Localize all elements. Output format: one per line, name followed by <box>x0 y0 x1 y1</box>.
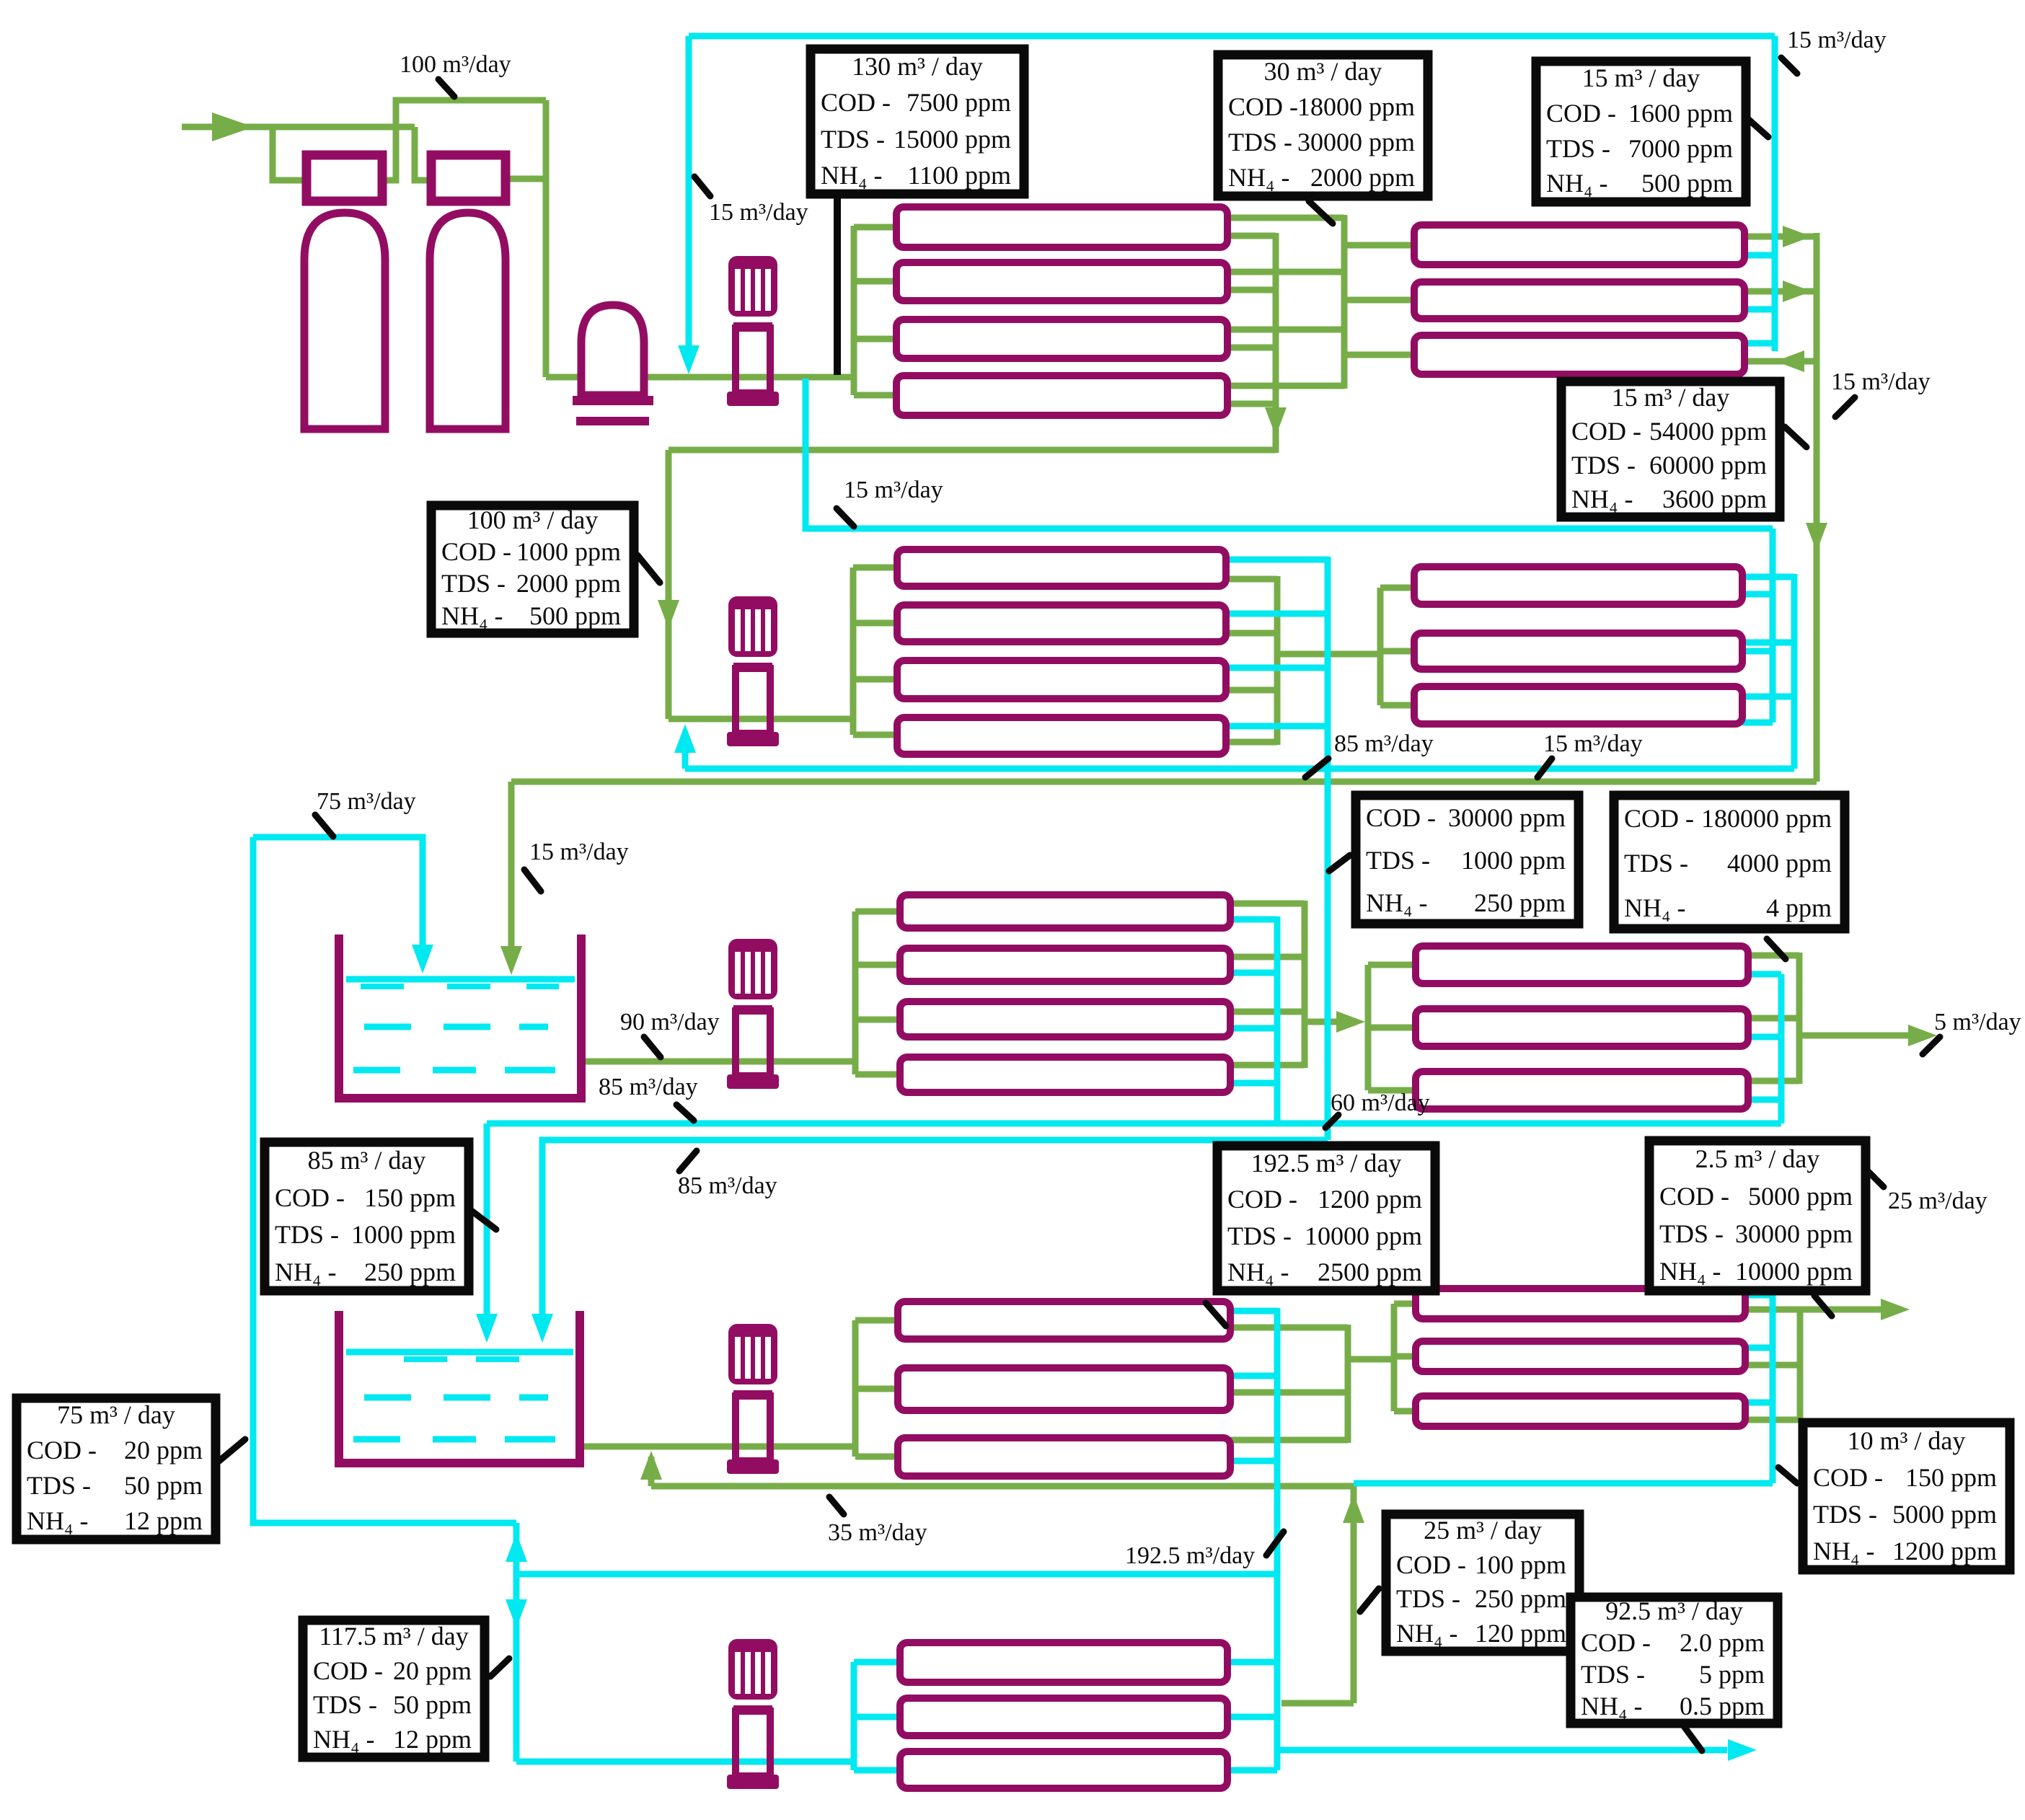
svg-text:20 ppm: 20 ppm <box>393 1656 472 1685</box>
svg-text:2000 ppm: 2000 ppm <box>1310 163 1415 192</box>
svg-text:NH₄ -: NH₄ - <box>313 1725 375 1754</box>
svg-text:NH₄ -: NH₄ - <box>1571 485 1633 513</box>
svg-text:12 ppm: 12 ppm <box>124 1506 203 1535</box>
svg-text:30000 ppm: 30000 ppm <box>1735 1219 1853 1248</box>
svg-text:NH₄ -: NH₄ - <box>1546 169 1608 198</box>
svg-text:15000 ppm: 15000 ppm <box>894 125 1011 154</box>
svg-text:1600 ppm: 1600 ppm <box>1628 99 1733 128</box>
svg-text:5000 ppm: 5000 ppm <box>1892 1500 1997 1529</box>
svg-text:NH₄ -: NH₄ - <box>1366 888 1428 917</box>
svg-text:150 ppm: 150 ppm <box>1905 1463 1997 1492</box>
svg-text:TDS -: TDS - <box>821 125 885 154</box>
svg-text:500 ppm: 500 ppm <box>529 601 621 630</box>
svg-text:COD -: COD - <box>1624 804 1694 833</box>
svg-text:117.5 m³ / day: 117.5 m³ / day <box>319 1622 468 1651</box>
svg-text:5 ppm: 5 ppm <box>1699 1660 1765 1689</box>
svg-text:1000 ppm: 1000 ppm <box>351 1220 456 1249</box>
svg-text:COD -: COD - <box>275 1183 345 1212</box>
svg-text:250 ppm: 250 ppm <box>364 1258 456 1286</box>
svg-text:NH₄ -: NH₄ - <box>1581 1692 1643 1720</box>
svg-text:192.5 m³ / day: 192.5 m³ / day <box>1251 1149 1402 1178</box>
svg-text:5000 ppm: 5000 ppm <box>1748 1182 1853 1211</box>
svg-text:1000 ppm: 1000 ppm <box>516 537 621 566</box>
svg-text:25 m³ / day: 25 m³ / day <box>1424 1516 1542 1545</box>
svg-text:18000 ppm: 18000 ppm <box>1297 92 1415 121</box>
svg-text:60000 ppm: 60000 ppm <box>1649 451 1767 480</box>
svg-text:100 m³/day: 100 m³/day <box>400 51 511 78</box>
svg-text:7500 ppm: 7500 ppm <box>906 88 1011 117</box>
svg-text:TDS -: TDS - <box>1581 1660 1645 1689</box>
svg-text:TDS -: TDS - <box>1396 1584 1460 1613</box>
svg-text:0.5 ppm: 0.5 ppm <box>1680 1692 1765 1720</box>
svg-text:NH₄ -: NH₄ - <box>1396 1619 1458 1648</box>
svg-text:2500 ppm: 2500 ppm <box>1318 1258 1422 1286</box>
svg-text:NH₄ -: NH₄ - <box>821 161 883 190</box>
svg-text:TDS -: TDS - <box>1659 1219 1724 1248</box>
svg-text:15 m³ / day: 15 m³ / day <box>1582 63 1700 92</box>
svg-text:COD -: COD - <box>1571 417 1641 446</box>
svg-text:30 m³ / day: 30 m³ / day <box>1264 57 1382 86</box>
svg-text:85 m³ / day: 85 m³ / day <box>308 1146 426 1175</box>
svg-text:NH₄ -: NH₄ - <box>441 601 503 630</box>
svg-text:TDS -: TDS - <box>1624 849 1688 878</box>
svg-text:15 m³/day: 15 m³/day <box>1543 730 1643 757</box>
svg-text:150 ppm: 150 ppm <box>364 1183 456 1212</box>
svg-text:35 m³/day: 35 m³/day <box>828 1519 927 1546</box>
svg-text:COD -: COD - <box>821 88 891 117</box>
svg-text:COD -: COD - <box>1366 803 1436 832</box>
svg-text:15 m³/day: 15 m³/day <box>1787 27 1887 53</box>
svg-text:COD -: COD - <box>1228 92 1298 121</box>
svg-text:100 ppm: 100 ppm <box>1475 1550 1566 1579</box>
svg-text:7000 ppm: 7000 ppm <box>1628 134 1733 163</box>
svg-text:120 ppm: 120 ppm <box>1475 1619 1566 1648</box>
svg-text:2.5 m³ / day: 2.5 m³ / day <box>1695 1144 1820 1173</box>
svg-text:COD -: COD - <box>1659 1182 1729 1211</box>
svg-text:50 ppm: 50 ppm <box>393 1690 472 1719</box>
svg-text:60 m³/day: 60 m³/day <box>1331 1090 1430 1116</box>
svg-text:30000 ppm: 30000 ppm <box>1297 128 1415 156</box>
svg-text:15 m³/day: 15 m³/day <box>529 839 629 865</box>
svg-text:92.5 m³ / day: 92.5 m³ / day <box>1605 1596 1743 1625</box>
svg-text:COD -: COD - <box>27 1436 97 1465</box>
svg-text:15 m³/day: 15 m³/day <box>709 199 808 226</box>
svg-text:3600 ppm: 3600 ppm <box>1662 485 1767 513</box>
svg-text:12 ppm: 12 ppm <box>393 1725 472 1754</box>
svg-text:90 m³/day: 90 m³/day <box>620 1009 720 1035</box>
svg-text:TDS -: TDS - <box>1546 134 1610 163</box>
svg-text:COD -: COD - <box>1546 99 1616 128</box>
svg-text:130 m³ / day: 130 m³ / day <box>852 52 983 81</box>
svg-text:NH₄ -: NH₄ - <box>1659 1257 1721 1286</box>
svg-text:2.0 ppm: 2.0 ppm <box>1680 1628 1765 1657</box>
svg-text:85 m³/day: 85 m³/day <box>1334 730 1434 757</box>
svg-text:COD -: COD - <box>1227 1185 1297 1214</box>
svg-text:5 m³/day: 5 m³/day <box>1934 1009 2021 1035</box>
svg-text:COD -: COD - <box>441 537 511 566</box>
svg-text:10000 ppm: 10000 ppm <box>1305 1222 1422 1250</box>
svg-text:1100 ppm: 1100 ppm <box>907 161 1011 190</box>
svg-text:1200 ppm: 1200 ppm <box>1318 1185 1422 1214</box>
svg-text:TDS -: TDS - <box>441 569 506 598</box>
svg-text:100 m³ / day: 100 m³ / day <box>467 505 599 534</box>
svg-text:50 ppm: 50 ppm <box>124 1471 203 1500</box>
svg-text:192.5 m³/day: 192.5 m³/day <box>1125 1542 1255 1569</box>
svg-text:250 ppm: 250 ppm <box>1474 888 1566 917</box>
svg-text:500 ppm: 500 ppm <box>1641 169 1733 198</box>
svg-text:COD -: COD - <box>1581 1628 1651 1657</box>
svg-text:15 m³/day: 15 m³/day <box>1831 368 1931 395</box>
svg-text:180000 ppm: 180000 ppm <box>1701 804 1832 833</box>
svg-text:TDS -: TDS - <box>1571 451 1636 480</box>
svg-text:75 m³ / day: 75 m³ / day <box>57 1400 175 1429</box>
svg-text:NH₄ -: NH₄ - <box>27 1506 89 1535</box>
svg-text:NH₄ -: NH₄ - <box>1813 1537 1875 1565</box>
svg-text:NH₄ -: NH₄ - <box>1624 893 1686 922</box>
svg-text:2000 ppm: 2000 ppm <box>516 569 621 598</box>
svg-text:10 m³ / day: 10 m³ / day <box>1848 1426 1966 1455</box>
svg-text:25 m³/day: 25 m³/day <box>1888 1188 1987 1214</box>
svg-text:15 m³/day: 15 m³/day <box>844 477 943 503</box>
svg-text:75 m³/day: 75 m³/day <box>317 788 416 815</box>
svg-text:4000 ppm: 4000 ppm <box>1727 849 1832 878</box>
svg-text:COD -: COD - <box>313 1656 383 1685</box>
svg-text:15 m³ / day: 15 m³ / day <box>1612 383 1730 412</box>
svg-text:85 m³/day: 85 m³/day <box>599 1074 698 1100</box>
svg-text:TDS -: TDS - <box>313 1690 377 1719</box>
svg-text:NH₄ -: NH₄ - <box>275 1258 337 1286</box>
svg-text:TDS -: TDS - <box>1228 128 1292 156</box>
svg-text:4 ppm: 4 ppm <box>1766 893 1832 922</box>
svg-text:TDS -: TDS - <box>1813 1500 1877 1529</box>
svg-text:10000 ppm: 10000 ppm <box>1735 1257 1853 1286</box>
svg-text:COD -: COD - <box>1813 1463 1883 1492</box>
svg-text:TDS -: TDS - <box>275 1220 339 1249</box>
svg-text:85 m³/day: 85 m³/day <box>678 1172 777 1199</box>
svg-text:250 ppm: 250 ppm <box>1475 1584 1566 1613</box>
svg-text:COD -: COD - <box>1396 1550 1466 1579</box>
svg-text:1200 ppm: 1200 ppm <box>1892 1537 1997 1565</box>
svg-text:20 ppm: 20 ppm <box>124 1436 203 1465</box>
svg-text:54000 ppm: 54000 ppm <box>1649 417 1767 446</box>
svg-text:TDS -: TDS - <box>1227 1222 1292 1250</box>
svg-text:30000 ppm: 30000 ppm <box>1448 803 1566 832</box>
svg-text:1000 ppm: 1000 ppm <box>1461 846 1566 875</box>
svg-text:TDS -: TDS - <box>1366 846 1430 875</box>
svg-text:NH₄ -: NH₄ - <box>1227 1258 1289 1286</box>
svg-text:TDS -: TDS - <box>27 1471 91 1500</box>
svg-text:NH₄ -: NH₄ - <box>1228 163 1290 192</box>
